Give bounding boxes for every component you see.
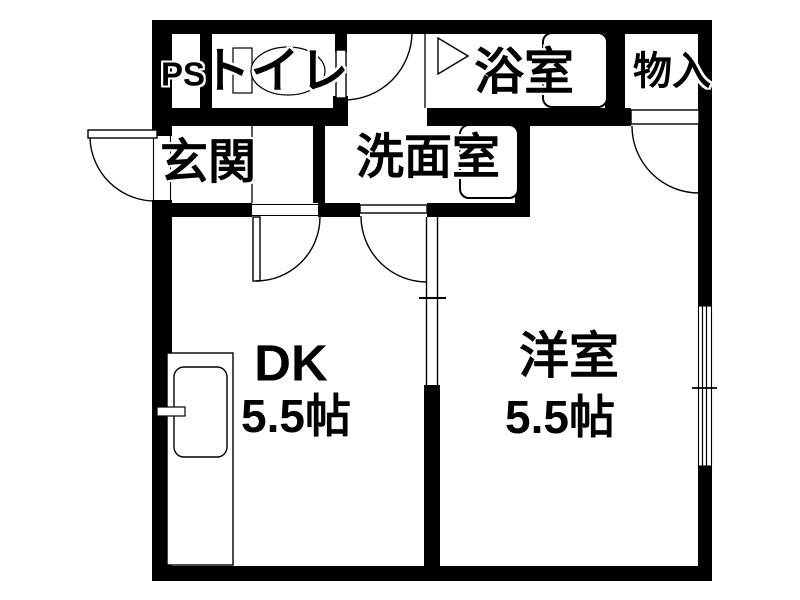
walls xyxy=(152,20,712,581)
wall-mid-center xyxy=(427,108,631,126)
wall-hall-bottom-left xyxy=(152,203,252,217)
wall-hall-bottom-mid xyxy=(318,203,360,217)
hall-dk-door xyxy=(252,205,320,282)
kitchen-counter xyxy=(157,353,233,565)
label-ps: PS xyxy=(161,58,205,91)
wall-right-lower xyxy=(698,466,712,581)
storage-door xyxy=(631,110,699,193)
wall-washroom-left xyxy=(313,126,325,203)
toilet-door-arc xyxy=(344,32,412,100)
hall-dk-door-leaf xyxy=(253,217,260,281)
label-western-room-size: 5.5帖 xyxy=(505,394,615,440)
washroom-door-leaf xyxy=(360,205,427,213)
label-dk: DK xyxy=(254,338,328,389)
label-western-room: 洋室 xyxy=(519,331,619,381)
dk-western-sliding-door xyxy=(419,217,446,385)
entrance-door-leaf xyxy=(88,130,157,138)
label-washroom: 洗面室 xyxy=(356,134,500,182)
entrance-door xyxy=(88,130,171,201)
label-bath: 浴室 xyxy=(474,47,574,97)
wall-washroom-bottom xyxy=(427,203,530,217)
wall-bottom xyxy=(152,566,712,581)
floorplan-canvas: PS トイレ 浴室 物入 玄関 洗面室 DK 5.5帖 洋室 5.5帖 xyxy=(0,0,800,600)
kitchen-faucet xyxy=(157,407,185,416)
wall-dk-partition-solid xyxy=(424,385,440,566)
bath-door-triangle xyxy=(438,38,468,74)
wall-top xyxy=(152,20,712,34)
entrance-door-arc xyxy=(90,138,155,201)
washroom-door xyxy=(360,205,427,282)
wall-mid-right-stub xyxy=(699,108,712,126)
wall-mid-left xyxy=(152,108,348,126)
bath-door xyxy=(425,34,468,108)
label-storage: 物入 xyxy=(633,53,711,92)
label-toilet: トイレ xyxy=(201,48,348,97)
storage-door-leaf xyxy=(631,110,699,124)
western-room-window xyxy=(692,306,717,466)
storage-door-arc xyxy=(632,126,699,193)
label-entrance: 玄関 xyxy=(160,139,256,187)
label-dk-size: 5.5帖 xyxy=(241,393,351,439)
washroom-door-arc xyxy=(361,216,427,282)
hall-dk-door-arc xyxy=(256,217,320,281)
window-frame xyxy=(699,306,712,466)
